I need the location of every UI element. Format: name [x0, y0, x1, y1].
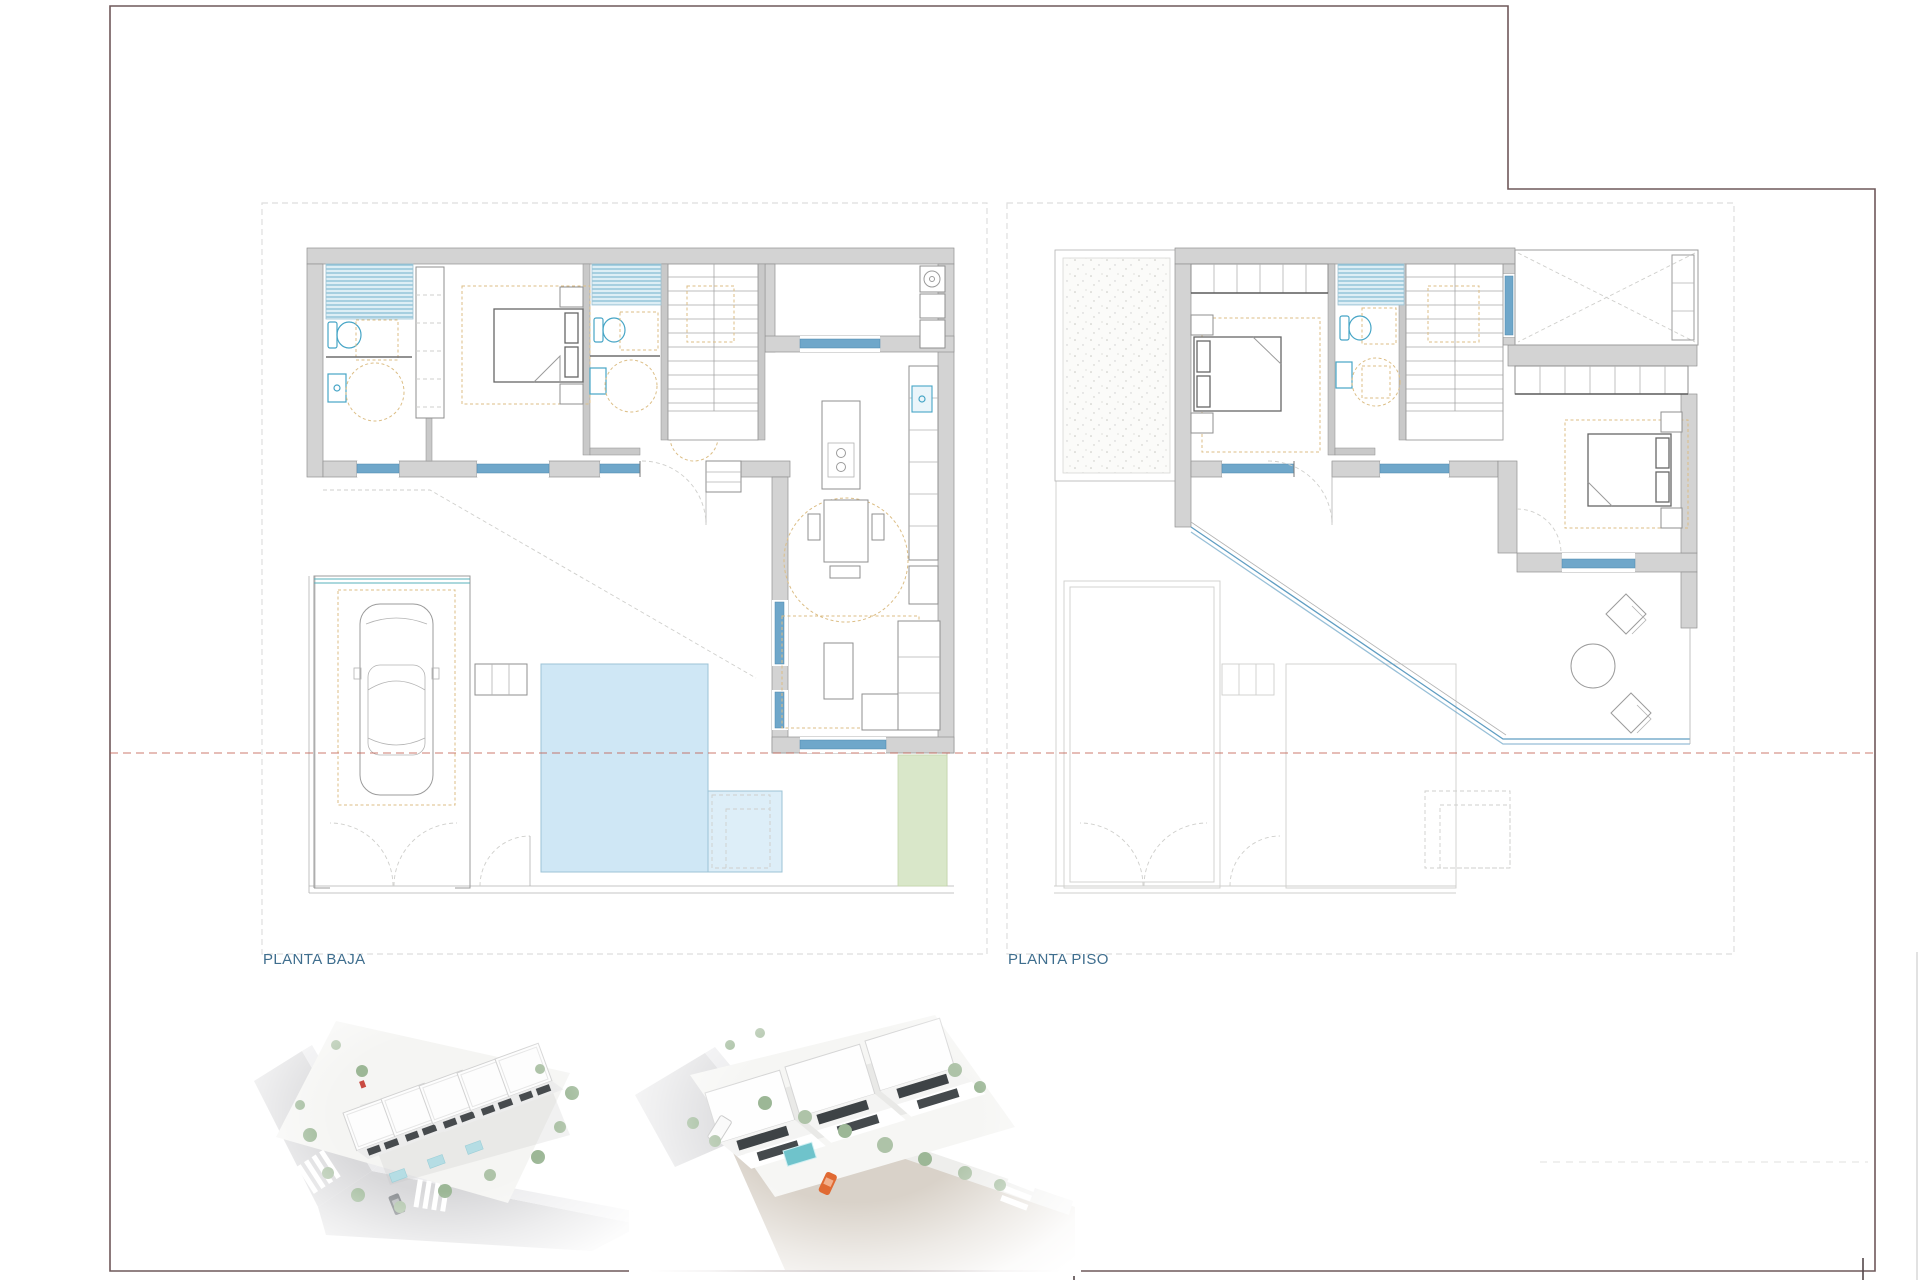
plan-sheet: PLANTA BAJA PLANTA PISO	[0, 0, 1920, 1280]
ground-floor-plan	[307, 248, 954, 893]
bedroom-3	[1515, 366, 1688, 528]
lawn	[898, 755, 947, 886]
shower-1	[326, 264, 413, 319]
dining-area	[784, 498, 908, 622]
upper-floor-plan	[1054, 248, 1698, 893]
dining-table	[824, 500, 868, 562]
sofa	[898, 621, 940, 730]
wardrobe-3	[1515, 366, 1688, 394]
ghost-pool	[1286, 664, 1456, 888]
solarium-terrace	[1055, 250, 1178, 481]
void-room	[1515, 250, 1698, 345]
staircase-ground	[668, 264, 758, 440]
living-area	[782, 616, 940, 730]
garage	[314, 576, 530, 888]
bedroom-2	[1191, 264, 1328, 452]
bedroom-1	[416, 267, 590, 418]
terrace-furniture	[1571, 594, 1651, 733]
shower-2	[592, 264, 661, 305]
exterior-render-left	[240, 985, 650, 1253]
upper-floor-label: PLANTA PISO	[1008, 951, 1109, 969]
garden-step	[475, 664, 527, 695]
closet	[416, 267, 444, 418]
shower-3	[1338, 264, 1404, 305]
terrace-table	[1571, 644, 1615, 688]
coffee-table	[824, 643, 853, 699]
wardrobe-2	[1191, 264, 1328, 293]
laundry-room	[920, 266, 945, 348]
exterior-render-right	[635, 975, 1075, 1270]
bathroom-3	[1336, 264, 1404, 406]
staircase-upper	[1406, 264, 1503, 440]
kitchen-sink	[912, 386, 932, 412]
ground-floor-label: PLANTA BAJA	[263, 951, 366, 969]
swimming-pool	[541, 664, 782, 872]
bathroom-1	[326, 264, 413, 421]
car-icon	[354, 604, 439, 795]
ghost-lower-floor	[1054, 481, 1510, 893]
bathroom-2	[590, 264, 661, 412]
